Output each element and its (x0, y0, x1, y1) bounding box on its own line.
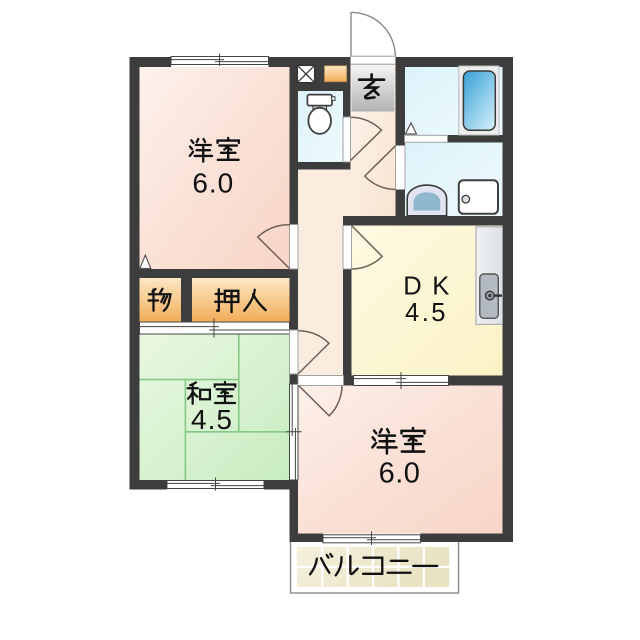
svg-text:6.0: 6.0 (192, 168, 234, 199)
svg-text:4.5: 4.5 (191, 404, 233, 435)
svg-text:4.5: 4.5 (405, 299, 448, 327)
svg-text:6.0: 6.0 (379, 457, 421, 489)
svg-text:DK: DK (403, 273, 459, 301)
